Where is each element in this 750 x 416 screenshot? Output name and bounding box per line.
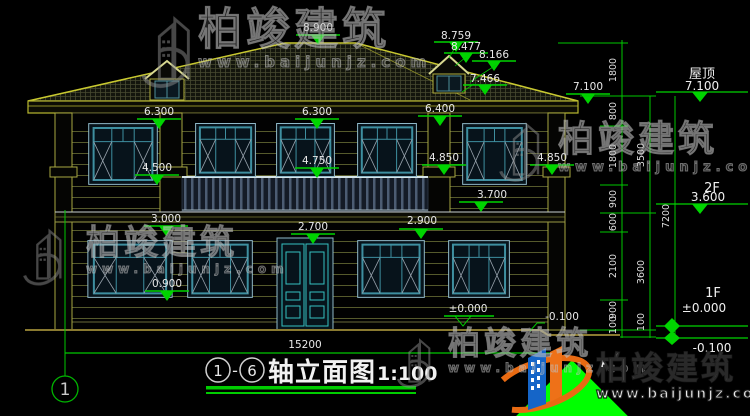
axis-bubble-label: 1: [60, 380, 71, 400]
dim-4500: 4.500: [142, 162, 172, 174]
label-1f-val: ±0.000: [682, 301, 726, 315]
label-roof-val: 7.100: [685, 79, 719, 93]
chain-7200: 7200: [661, 204, 672, 228]
chain-3600: 3600: [636, 260, 647, 284]
elevation-drawing: 8.900 8.759 8.477 8.166 7.466 7.100 6.30…: [0, 0, 750, 416]
dim-3000: 3.000: [151, 213, 181, 225]
dim-2900: 2.900: [407, 215, 437, 227]
dim-6300-l: 6.300: [144, 106, 174, 118]
chain-600: 600: [608, 213, 619, 231]
dim-zero: ±0.000: [449, 303, 488, 315]
dim-7466: 7.466: [470, 73, 500, 85]
dormer-right: [429, 56, 469, 93]
cad-canvas[interactable]: 8.900 8.759 8.477 8.166 7.466 7.100 6.30…: [0, 0, 750, 416]
dim-ridge: 8.900: [303, 22, 333, 34]
title-underline-thick: [206, 386, 416, 390]
chain-100b: 100: [636, 313, 647, 331]
chain-800: 800: [608, 102, 619, 120]
dim-eave: 7.100: [573, 81, 603, 93]
chain-1800b: 1800: [608, 144, 619, 168]
dim-2700: 2.700: [298, 221, 328, 233]
drawing-title: 1 - 6 轴立面图 1:100: [206, 357, 437, 394]
chain-1800a: 1800: [608, 58, 619, 82]
chain-900a: 900: [608, 190, 619, 208]
dim-6300-m: 6.300: [302, 106, 332, 118]
title-axis-from: 1: [213, 362, 223, 380]
chain-2100: 2100: [608, 254, 619, 278]
label-below-val: -0.100: [693, 341, 732, 355]
dim-4750: 4.750: [302, 155, 332, 167]
logo-wing-icon: [550, 346, 562, 402]
title-name: 轴立面图: [268, 357, 376, 388]
label-2f-val: 3.600: [691, 190, 725, 204]
label-1f: 1F: [705, 286, 721, 301]
dim-8166: 8.166: [479, 49, 509, 61]
chain-100a: 100: [608, 316, 619, 334]
dim-8477: 8.477: [451, 41, 481, 53]
dim-0900: 0.900: [152, 278, 182, 290]
title-axis-to: 6: [247, 362, 257, 380]
dim-4850-l: 4.850: [429, 152, 459, 164]
dim-width-15200: 15200: [288, 339, 321, 351]
chain-3500: 3500: [636, 143, 647, 167]
dim-4850-r: 4.850: [537, 152, 567, 164]
dim-3700: 3.700: [477, 189, 507, 201]
dim-6400: 6.400: [425, 103, 455, 115]
balcony-railing: [182, 177, 428, 211]
dim-minus: -0.100: [545, 311, 579, 323]
entry-door: [277, 238, 333, 330]
title-dash: -: [232, 361, 238, 380]
title-underline-thin: [206, 392, 416, 394]
